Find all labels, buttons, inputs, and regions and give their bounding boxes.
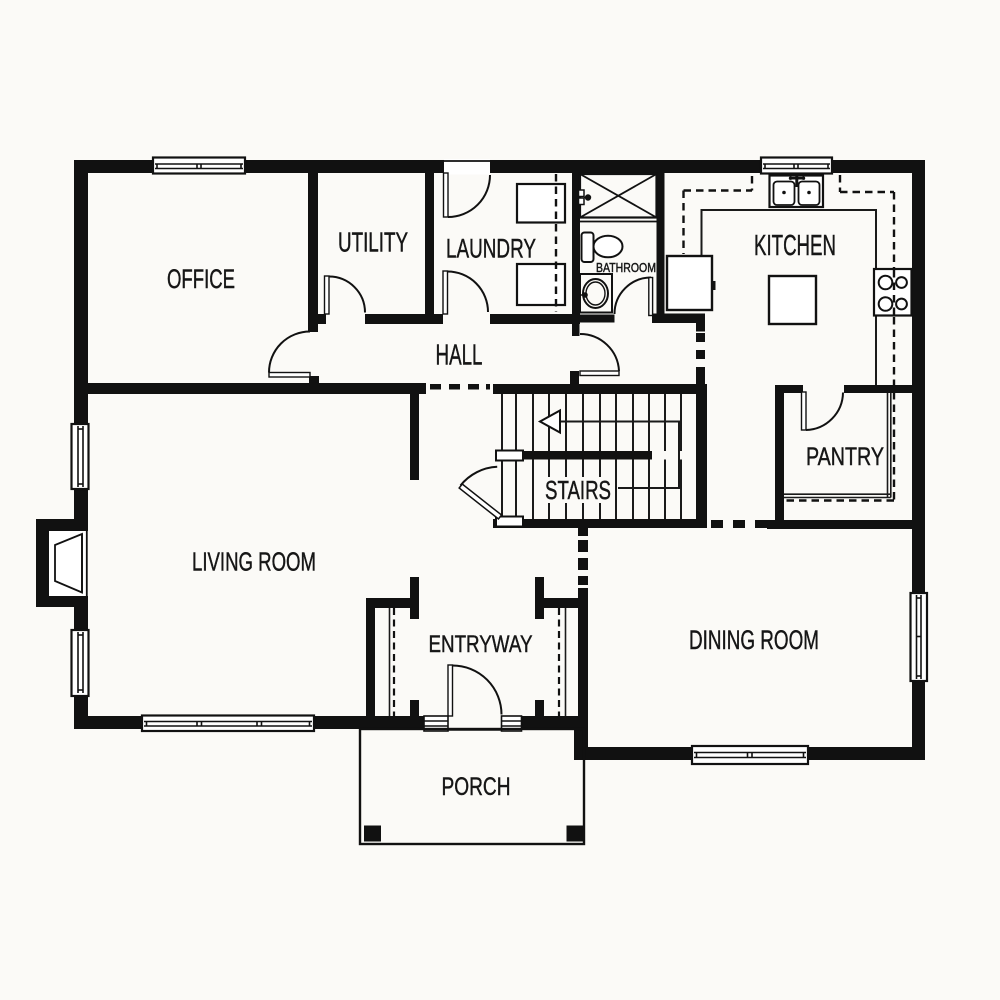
- svg-text:ENTRYWAY: ENTRYWAY: [429, 631, 533, 658]
- svg-text:PANTRY: PANTRY: [806, 443, 884, 471]
- svg-text:STAIRS: STAIRS: [545, 477, 611, 505]
- svg-text:DINING ROOM: DINING ROOM: [689, 625, 819, 655]
- svg-text:LIVING ROOM: LIVING ROOM: [192, 547, 316, 577]
- svg-text:PORCH: PORCH: [442, 773, 511, 801]
- svg-text:BATHROOM: BATHROOM: [596, 261, 656, 275]
- svg-text:LAUNDRY: LAUNDRY: [446, 234, 536, 264]
- svg-text:KITCHEN: KITCHEN: [754, 230, 836, 262]
- svg-text:OFFICE: OFFICE: [167, 264, 235, 294]
- svg-text:HALL: HALL: [436, 340, 483, 372]
- svg-text:UTILITY: UTILITY: [338, 227, 408, 258]
